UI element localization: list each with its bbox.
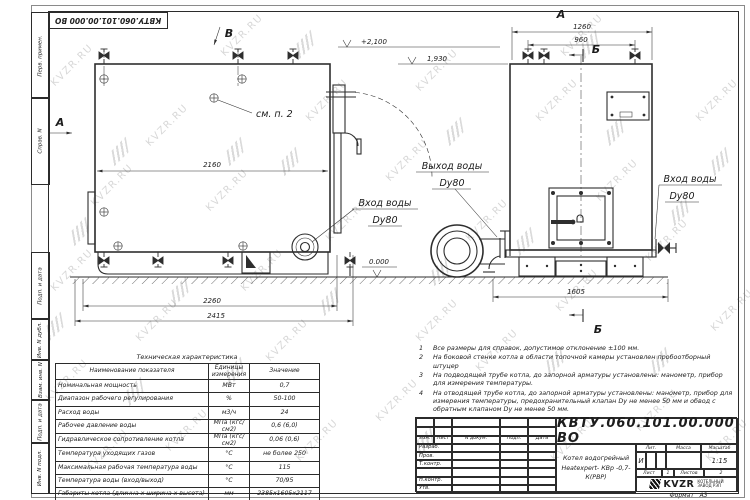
param-units: мм xyxy=(209,488,250,500)
outlet-label: Выход воды xyxy=(422,161,483,172)
param-value: 50-100 xyxy=(250,393,320,406)
param-units: °С xyxy=(209,448,250,461)
param-units: м3/ч xyxy=(209,406,250,419)
tech-col-units: Единицы измерения xyxy=(209,364,250,380)
nameplate xyxy=(607,92,649,120)
company-name: КОТЕЛЬНЫЙ ЗАВОД РЭП xyxy=(697,480,723,489)
param-value: 70/95 xyxy=(250,474,320,487)
format-value: А3 xyxy=(700,492,708,499)
param-units: °С xyxy=(209,474,250,487)
note-text: Все размеры для справок, допустимое откл… xyxy=(433,344,639,352)
param-value: 0,7 xyxy=(250,380,320,393)
note-text: На отводящей трубе котла, до запорной ар… xyxy=(433,389,735,414)
note-text: На боковой стенке котла в области топочн… xyxy=(433,353,735,370)
doc-number: КВТУ.060.101.00.000 ВО xyxy=(556,418,738,444)
dim-960-label: 960 xyxy=(574,36,588,44)
level-2100-label: +2,100 xyxy=(361,38,387,46)
table-row: Расход водым3/ч24 xyxy=(56,406,320,419)
table-row: Номинальная мощностьМВт0,7 xyxy=(56,380,320,393)
tech-col-name: Наименование показателя xyxy=(56,364,209,380)
row-empty xyxy=(416,468,452,476)
door-handle xyxy=(551,220,573,224)
sheets-value: 2 xyxy=(704,469,738,477)
param-name: Температура уходящих газов xyxy=(56,448,209,461)
inlet-dy80-side: Dy80 xyxy=(372,215,397,226)
param-value: 115 xyxy=(250,461,320,474)
company-short: KVZR xyxy=(663,479,694,490)
see-note-label: см. п. 2 xyxy=(256,109,293,120)
table-row: Максимальная рабочая температура воды°С1… xyxy=(56,461,320,474)
product-name: Котел водогрейный Heatexpert- КВр -0,7- … xyxy=(556,444,636,493)
tech-col-value: Значение xyxy=(250,364,320,380)
row-nkontr: Н.контр. xyxy=(416,477,452,485)
param-name: Габариты котла (длинна х ширина х высота… xyxy=(56,488,209,500)
inlet-label-front: Вход воды xyxy=(663,174,717,185)
row-utv: Утв. xyxy=(416,485,452,493)
param-name: Расход воды xyxy=(56,406,209,419)
param-units: МПа (кгс/см2) xyxy=(209,420,250,434)
note-item: 4На отводящей трубе котла, до запорной а… xyxy=(419,389,735,414)
param-value: 24 xyxy=(250,406,320,419)
base-skid xyxy=(98,252,328,274)
note-item: 3На подводящей трубе котла, до запорной … xyxy=(419,371,735,388)
scale-header: Масштаб xyxy=(701,444,738,452)
sheet-value: 1 xyxy=(662,469,674,477)
tech-table-title: Техническая характеристика xyxy=(55,353,319,361)
product-name-line2: Heatexpert- КВр -0,7- К(РВР) xyxy=(557,464,635,483)
scale-value: 1:15 xyxy=(701,452,738,469)
inlet-dy80-front: Dy80 xyxy=(669,191,694,202)
param-units: % xyxy=(209,393,250,406)
param-units: МПа (кгс/см2) xyxy=(209,434,250,448)
format-label: Формат xyxy=(670,492,694,499)
inlet-label-side: Вход воды xyxy=(358,198,412,209)
param-name: Максимальная рабочая температура воды xyxy=(56,461,209,474)
col-date: Дата xyxy=(528,436,556,445)
table-row: Гидравлическое сопротивление котлаМПа (к… xyxy=(56,434,320,448)
section-b-bottom-label: Б xyxy=(594,323,602,336)
lit-value: И xyxy=(636,452,646,469)
param-name: Рабочее давление воды xyxy=(56,420,209,434)
view-a-top-label: А xyxy=(556,8,566,21)
param-name: Номинальная мощность xyxy=(56,380,209,393)
note-number: 1 xyxy=(419,344,427,352)
param-name: Диапазон рабочего регулирования xyxy=(56,393,209,406)
note-item: 2На боковой стенке котла в области топоч… xyxy=(419,353,735,370)
col-doc: N докум. xyxy=(452,436,500,445)
note-text: На подводящей трубе котла, до запорной а… xyxy=(433,371,735,388)
door-latch xyxy=(577,215,583,222)
lit-cell-3 xyxy=(656,452,666,469)
company-cell: KVZR КОТЕЛЬНЫЙ ЗАВОД РЭП xyxy=(636,477,738,492)
table-row: Диапазон рабочего регулирования%50-100 xyxy=(56,393,320,406)
sheet-label: Лист xyxy=(636,469,662,477)
door-swing-arc xyxy=(347,92,432,177)
front-view-dimensions: А 1260 960 Б Б 1605 Вход воды Dy xyxy=(493,8,722,336)
section-b-top-label: Б xyxy=(592,43,600,56)
kvzr-logo-icon xyxy=(649,479,661,489)
mass-value xyxy=(666,452,701,469)
title-block: Изм. Лист N докум. Подп. Дата Разраб. Пр… xyxy=(415,417,737,492)
dim-2160-label: 2160 xyxy=(203,161,221,169)
inlet-flange xyxy=(292,234,318,260)
lit-cell-2 xyxy=(646,452,656,469)
table-row: Рабочее давление водыМПа (кгс/см2)0,6 (6… xyxy=(56,420,320,434)
view-a-side-label: А xyxy=(55,116,65,129)
col-sign: Подп. xyxy=(500,436,528,445)
param-units: °С xyxy=(209,461,250,474)
row-razrab: Разраб. xyxy=(416,444,452,452)
title-block-left-grid: Изм. Лист N докум. Подп. Дата Разраб. Пр… xyxy=(416,418,556,493)
ground-line xyxy=(70,277,668,284)
table-row: Температура уходящих газов°Сне более 250 xyxy=(56,448,320,461)
note-item: 1Все размеры для справок, допустимое отк… xyxy=(419,344,735,352)
view-b-label: В xyxy=(225,27,233,40)
param-value: не более 250 xyxy=(250,448,320,461)
company-line2: ЗАВОД РЭП xyxy=(697,484,723,489)
side-view xyxy=(88,49,432,276)
table-row: Габариты котла (длинна х ширина х высота… xyxy=(56,488,320,500)
row-prov: Пров. xyxy=(416,452,452,460)
mass-header: Масса xyxy=(666,444,701,452)
row-tkontr: Т.контр. xyxy=(416,460,452,468)
col-izm: Изм. xyxy=(416,436,434,445)
param-value: 0,06 (0,6) xyxy=(250,434,320,448)
col-list: Лист xyxy=(434,436,452,445)
level-zero-label: 0.000 xyxy=(369,258,390,266)
tech-table: Наименование показателя Единицы измерени… xyxy=(55,363,320,500)
dim-1260-label: 1260 xyxy=(573,23,591,31)
note-number: 2 xyxy=(419,353,427,370)
dim-2415-label: 2415 xyxy=(207,312,225,320)
drawing-sheet: KVZR.RU KVZR.RU KVZR.RU KVZR.RU KVZR.RU … xyxy=(0,0,750,500)
outlet-dy80: Dy80 xyxy=(439,178,464,189)
param-name: Гидравлическое сопротивление котла xyxy=(56,434,209,448)
note-number: 3 xyxy=(419,371,427,388)
dim-1605-label: 1605 xyxy=(567,288,585,296)
tech-table-header-row: Наименование показателя Единицы измерени… xyxy=(56,364,320,380)
lit-header: Лит. xyxy=(636,444,666,452)
level-1930-label: 1,930 xyxy=(427,55,448,63)
burner-flange xyxy=(431,225,505,277)
front-view xyxy=(483,49,676,276)
param-name: Температура воды (вход/выход) xyxy=(56,474,209,487)
param-units: МВт xyxy=(209,380,250,393)
note-number: 4 xyxy=(419,389,427,414)
outlet-pipe-assembly xyxy=(326,85,432,233)
format-strip: Формат А3 xyxy=(640,492,737,499)
dim-2260-label: 2260 xyxy=(203,297,221,305)
param-value: 2385х1605х2117 xyxy=(250,488,320,500)
product-name-line1: Котел водогрейный xyxy=(563,454,629,463)
table-row: Температура воды (вход/выход)°С70/95 xyxy=(56,474,320,487)
front-base-frame xyxy=(506,250,656,276)
sheets-label: Листов xyxy=(674,469,704,477)
notes-list: 1Все размеры для справок, допустимое отк… xyxy=(419,344,735,415)
param-value: 0,6 (6,0) xyxy=(250,420,320,434)
